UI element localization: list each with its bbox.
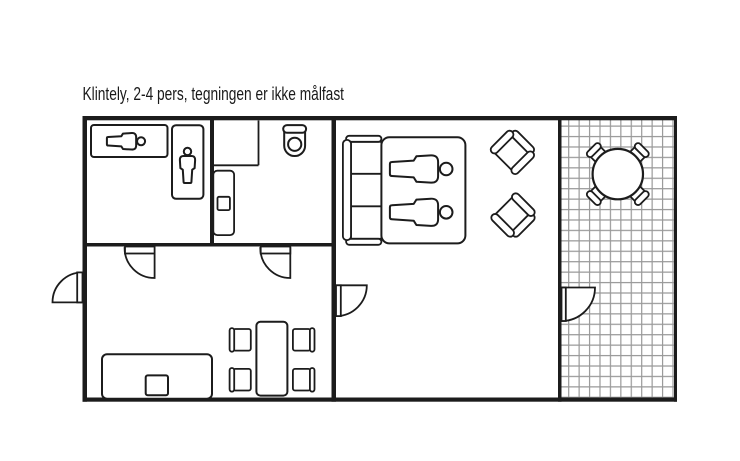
svg-text:Klintely, 2-4 pers, tegningen: Klintely, 2-4 pers, tegningen er ikke må… [83,83,345,104]
